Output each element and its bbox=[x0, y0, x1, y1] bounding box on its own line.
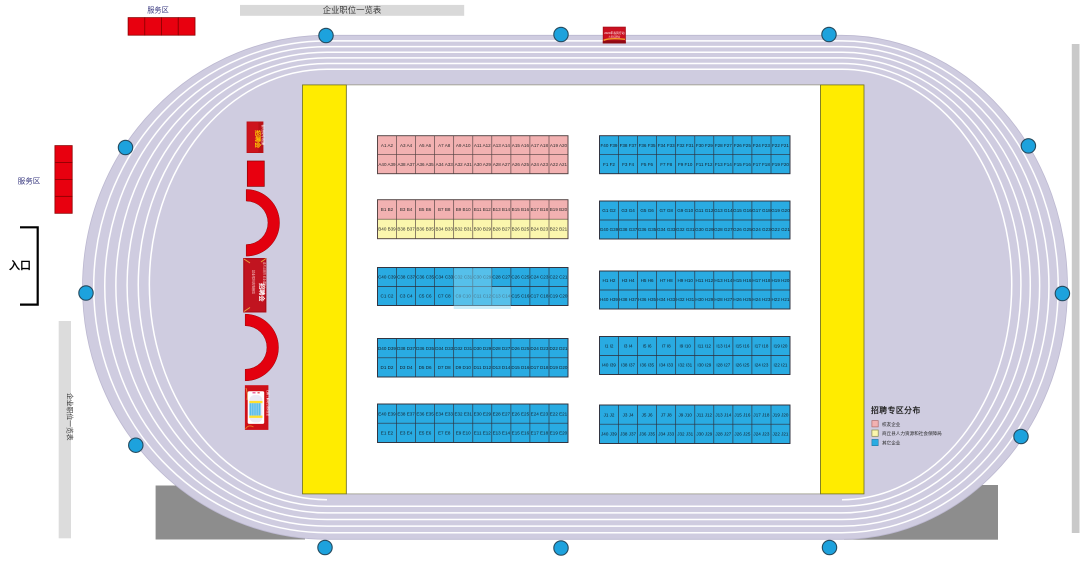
svg-text:J13 J14: J13 J14 bbox=[715, 412, 731, 417]
svg-text:E38 E37: E38 E37 bbox=[397, 411, 415, 416]
svg-text:A40 A39: A40 A39 bbox=[378, 162, 396, 167]
svg-text:F22 F21: F22 F21 bbox=[772, 143, 789, 148]
svg-text:I13 I14: I13 I14 bbox=[716, 344, 730, 349]
svg-text:商丘县人力资源和社会保障局: 商丘县人力资源和社会保障局 bbox=[882, 430, 942, 437]
svg-text:J28 J27: J28 J27 bbox=[715, 432, 731, 437]
svg-text:G1 G2: G1 G2 bbox=[602, 208, 616, 213]
svg-text:J3 J4: J3 J4 bbox=[623, 412, 634, 417]
svg-text:F24 F23: F24 F23 bbox=[753, 143, 770, 148]
svg-text:B11 B12: B11 B12 bbox=[474, 207, 492, 212]
svg-text:E24 E23: E24 E23 bbox=[531, 411, 549, 416]
svg-text:扫码了解岗位详情信息: 扫码了解岗位详情信息 bbox=[266, 390, 270, 416]
svg-text:E5 E6: E5 E6 bbox=[419, 431, 432, 436]
svg-text:F38 F37: F38 F37 bbox=[620, 143, 637, 148]
svg-text:F15 F16: F15 F16 bbox=[734, 162, 751, 167]
svg-text:B30 B29: B30 B29 bbox=[474, 227, 492, 232]
svg-text:大型招聘会: 大型招聘会 bbox=[608, 35, 621, 39]
svg-text:G17 G18: G17 G18 bbox=[752, 208, 771, 213]
svg-text:C36 C35: C36 C35 bbox=[416, 275, 434, 280]
svg-text:A1 A2: A1 A2 bbox=[381, 143, 394, 148]
svg-text:F5 F6: F5 F6 bbox=[641, 162, 653, 167]
svg-text:G19 G20: G19 G20 bbox=[771, 208, 790, 213]
svg-text:H3 H4: H3 H4 bbox=[622, 278, 635, 283]
svg-text:H34 H33: H34 H33 bbox=[657, 297, 675, 302]
svg-text:D3 D4: D3 D4 bbox=[400, 365, 413, 370]
svg-text:B26 B25: B26 B25 bbox=[512, 227, 530, 232]
svg-text:J19 J20: J19 J20 bbox=[773, 412, 789, 417]
svg-text:I28 I27: I28 I27 bbox=[716, 363, 730, 368]
svg-text:B40 B39: B40 B39 bbox=[378, 227, 396, 232]
svg-text:I15 I16: I15 I16 bbox=[735, 344, 749, 349]
svg-text:H24 H23: H24 H23 bbox=[752, 297, 770, 302]
svg-text:C22 C21: C22 C21 bbox=[550, 275, 568, 280]
svg-text:J24 J23: J24 J23 bbox=[753, 432, 769, 437]
svg-text:I17 I18: I17 I18 bbox=[754, 344, 768, 349]
svg-text:I24 I23: I24 I23 bbox=[754, 363, 768, 368]
svg-text:就业帮扶真情相助: 就业帮扶真情相助 bbox=[252, 270, 257, 294]
svg-text:春风送真情 就业暖民心: 春风送真情 就业暖民心 bbox=[263, 262, 267, 289]
svg-text:服务区: 服务区 bbox=[147, 6, 169, 15]
svg-text:A19 A20: A19 A20 bbox=[550, 143, 568, 148]
svg-text:H26 H25: H26 H25 bbox=[733, 297, 751, 302]
svg-text:G15 G16: G15 G16 bbox=[733, 208, 752, 213]
svg-text:B3 B4: B3 B4 bbox=[400, 207, 413, 212]
svg-text:A9 A10: A9 A10 bbox=[456, 143, 471, 148]
svg-text:D38 D37: D38 D37 bbox=[397, 346, 415, 351]
svg-text:H11 H12: H11 H12 bbox=[695, 278, 713, 283]
svg-text:I1 I2: I1 I2 bbox=[605, 344, 614, 349]
svg-text:H9 H10: H9 H10 bbox=[677, 278, 693, 283]
svg-text:其它企业: 其它企业 bbox=[882, 440, 901, 447]
svg-text:企业职位一览表: 企业职位一览表 bbox=[65, 393, 74, 441]
svg-text:B32 B31: B32 B31 bbox=[454, 227, 472, 232]
svg-text:G30 G29: G30 G29 bbox=[695, 227, 714, 232]
svg-text:H38 H37: H38 H37 bbox=[619, 297, 637, 302]
svg-text:C1 C2: C1 C2 bbox=[381, 294, 394, 299]
svg-text:D36 D35: D36 D35 bbox=[416, 346, 434, 351]
svg-text:D28 D27: D28 D27 bbox=[492, 346, 510, 351]
svg-text:E22 E21: E22 E21 bbox=[550, 411, 568, 416]
svg-text:J1 J2: J1 J2 bbox=[604, 412, 615, 417]
svg-text:C15 C16: C15 C16 bbox=[511, 294, 529, 299]
svg-text:D7 D8: D7 D8 bbox=[438, 365, 451, 370]
svg-text:E9 E10: E9 E10 bbox=[456, 431, 471, 436]
svg-text:B9 B10: B9 B10 bbox=[456, 207, 471, 212]
svg-text:B38 B37: B38 B37 bbox=[397, 227, 415, 232]
svg-text:I3 I4: I3 I4 bbox=[624, 344, 633, 349]
svg-text:G36 G35: G36 G35 bbox=[638, 227, 657, 232]
svg-text:I7 I8: I7 I8 bbox=[662, 344, 671, 349]
svg-text:C26 C25: C26 C25 bbox=[511, 275, 529, 280]
svg-text:G40 G39: G40 G39 bbox=[600, 227, 619, 232]
svg-text:J40 J39: J40 J39 bbox=[601, 432, 617, 437]
svg-text:H28 H27: H28 H27 bbox=[714, 297, 732, 302]
svg-text:B34 B33: B34 B33 bbox=[435, 227, 453, 232]
svg-text:D30 D29: D30 D29 bbox=[473, 346, 491, 351]
svg-text:J22 J21: J22 J21 bbox=[773, 432, 789, 437]
svg-text:D34 D33: D34 D33 bbox=[435, 346, 453, 351]
svg-text:D26 D25: D26 D25 bbox=[511, 346, 529, 351]
svg-text:H7 H8: H7 H8 bbox=[660, 278, 673, 283]
svg-text:B28 B27: B28 B27 bbox=[493, 227, 511, 232]
svg-text:F36 F35: F36 F35 bbox=[639, 143, 656, 148]
svg-text:J9 J10: J9 J10 bbox=[678, 412, 692, 417]
svg-text:D5 D6: D5 D6 bbox=[419, 365, 432, 370]
svg-text:F40 F39: F40 F39 bbox=[601, 143, 618, 148]
svg-text:F17 F18: F17 F18 bbox=[753, 162, 770, 167]
svg-text:A22 A21: A22 A21 bbox=[550, 162, 568, 167]
svg-text:A3 A4: A3 A4 bbox=[400, 143, 413, 148]
svg-text:C34 C33: C34 C33 bbox=[435, 275, 453, 280]
svg-text:D15 D16: D15 D16 bbox=[511, 365, 529, 370]
svg-text:H36 H35: H36 H35 bbox=[638, 297, 656, 302]
svg-text:J32 J31: J32 J31 bbox=[677, 432, 693, 437]
svg-text:F9 F10: F9 F10 bbox=[678, 162, 693, 167]
svg-text:I26 I25: I26 I25 bbox=[735, 363, 749, 368]
svg-text:D11 D12: D11 D12 bbox=[473, 365, 491, 370]
svg-text:J5 J6: J5 J6 bbox=[642, 412, 653, 417]
svg-text:A17 A18: A17 A18 bbox=[531, 143, 549, 148]
svg-text:F7 F8: F7 F8 bbox=[660, 162, 672, 167]
svg-text:E28 E27: E28 E27 bbox=[493, 411, 511, 416]
svg-text:D24 D23: D24 D23 bbox=[530, 346, 548, 351]
svg-text:E34 E33: E34 E33 bbox=[435, 411, 453, 416]
svg-text:J38 J37: J38 J37 bbox=[620, 432, 636, 437]
svg-text:I40 I39: I40 I39 bbox=[602, 363, 616, 368]
svg-text:I5 I6: I5 I6 bbox=[643, 344, 652, 349]
svg-text:校友企业: 校友企业 bbox=[882, 421, 901, 428]
svg-text:F34 F33: F34 F33 bbox=[658, 143, 675, 148]
svg-text:I36 I35: I36 I35 bbox=[640, 363, 654, 368]
svg-text:A32 A31: A32 A31 bbox=[455, 162, 473, 167]
svg-text:招聘会: 招聘会 bbox=[254, 130, 262, 149]
svg-text:F26 F25: F26 F25 bbox=[734, 143, 751, 148]
svg-text:E30 E29: E30 E29 bbox=[474, 411, 492, 416]
svg-text:I19 I20: I19 I20 bbox=[774, 344, 788, 349]
svg-text:E7 E8: E7 E8 bbox=[438, 431, 451, 436]
svg-text:E3 E4: E3 E4 bbox=[400, 431, 413, 436]
svg-text:E40 E39: E40 E39 bbox=[378, 411, 396, 416]
svg-text:G22 G21: G22 G21 bbox=[771, 227, 790, 232]
svg-text:A26 A25: A26 A25 bbox=[512, 162, 530, 167]
svg-text:I11 I12: I11 I12 bbox=[698, 344, 712, 349]
svg-text:入口: 入口 bbox=[9, 259, 31, 272]
svg-text:E11 E12: E11 E12 bbox=[474, 431, 492, 436]
svg-text:G26 G25: G26 G25 bbox=[733, 227, 752, 232]
svg-text:J11 J12: J11 J12 bbox=[697, 412, 713, 417]
svg-text:H32 H31: H32 H31 bbox=[676, 297, 694, 302]
svg-text:H17 H18: H17 H18 bbox=[752, 278, 770, 283]
svg-text:F28 F27: F28 F27 bbox=[715, 143, 732, 148]
svg-text:H15 H16: H15 H16 bbox=[733, 278, 751, 283]
svg-text:H19 H20: H19 H20 bbox=[772, 278, 790, 283]
svg-text:F30 F29: F30 F29 bbox=[696, 143, 713, 148]
svg-text:C17 C18: C17 C18 bbox=[530, 294, 548, 299]
svg-text:B7 B8: B7 B8 bbox=[438, 207, 451, 212]
svg-text:E19 E20: E19 E20 bbox=[550, 431, 568, 436]
svg-text:H40 H39: H40 H39 bbox=[600, 297, 618, 302]
svg-text:J30 J29: J30 J29 bbox=[696, 432, 712, 437]
svg-text:E1 E2: E1 E2 bbox=[381, 431, 394, 436]
svg-text:C24 C23: C24 C23 bbox=[530, 275, 548, 280]
svg-text:H30 H29: H30 H29 bbox=[695, 297, 713, 302]
svg-text:B13 B14: B13 B14 bbox=[493, 207, 511, 212]
svg-text:B5 B6: B5 B6 bbox=[419, 207, 432, 212]
svg-text:G3 G4: G3 G4 bbox=[621, 208, 635, 213]
svg-text:D22 D21: D22 D21 bbox=[550, 346, 568, 351]
svg-text:F32 F31: F32 F31 bbox=[677, 143, 694, 148]
svg-text:A34 A33: A34 A33 bbox=[436, 162, 454, 167]
svg-text:F11 F12: F11 F12 bbox=[696, 162, 713, 167]
svg-text:C5 C6: C5 C6 bbox=[419, 294, 432, 299]
svg-text:招聘专区分布: 招聘专区分布 bbox=[871, 405, 921, 415]
svg-text:A11 A12: A11 A12 bbox=[474, 143, 491, 148]
svg-text:C38 C37: C38 C37 bbox=[397, 275, 415, 280]
svg-text:G38 G37: G38 G37 bbox=[619, 227, 638, 232]
svg-text:D32 D31: D32 D31 bbox=[454, 346, 472, 351]
svg-text:B36 B35: B36 B35 bbox=[416, 227, 434, 232]
svg-text:G11 G12: G11 G12 bbox=[695, 208, 714, 213]
svg-text:E32 E31: E32 E31 bbox=[454, 411, 472, 416]
svg-text:G7 G8: G7 G8 bbox=[659, 208, 673, 213]
svg-text:G28 G27: G28 G27 bbox=[714, 227, 733, 232]
svg-text:J17 J18: J17 J18 bbox=[753, 412, 769, 417]
svg-text:A30 A29: A30 A29 bbox=[474, 162, 492, 167]
svg-text:G24 G23: G24 G23 bbox=[752, 227, 771, 232]
svg-text:B19 B20: B19 B20 bbox=[550, 207, 568, 212]
svg-text:E17 E18: E17 E18 bbox=[531, 431, 549, 436]
svg-text:J34 J33: J34 J33 bbox=[658, 432, 674, 437]
svg-text:B17 B18: B17 B18 bbox=[531, 207, 549, 212]
svg-text:B24 B23: B24 B23 bbox=[531, 227, 549, 232]
svg-text:I30 I29: I30 I29 bbox=[697, 363, 711, 368]
svg-text:A7 A8: A7 A8 bbox=[438, 143, 451, 148]
svg-text:F1 F2: F1 F2 bbox=[603, 162, 615, 167]
svg-text:服务区: 服务区 bbox=[18, 176, 41, 186]
svg-text:I9 I10: I9 I10 bbox=[680, 344, 692, 349]
svg-text:D9 D10: D9 D10 bbox=[455, 365, 471, 370]
svg-text:D17 D18: D17 D18 bbox=[530, 365, 548, 370]
svg-text:I34 I33: I34 I33 bbox=[659, 363, 673, 368]
svg-text:I22 I21: I22 I21 bbox=[774, 363, 788, 368]
svg-text:B15 B16: B15 B16 bbox=[512, 207, 530, 212]
svg-text:H22 H21: H22 H21 bbox=[772, 297, 790, 302]
svg-text:C3 C4: C3 C4 bbox=[400, 294, 413, 299]
svg-text:E26 E25: E26 E25 bbox=[512, 411, 530, 416]
svg-text:A15 A16: A15 A16 bbox=[512, 143, 530, 148]
svg-text:A5 A6: A5 A6 bbox=[419, 143, 432, 148]
svg-text:F3 F4: F3 F4 bbox=[622, 162, 634, 167]
svg-text:G34 G33: G34 G33 bbox=[657, 227, 676, 232]
svg-text:I38 I37: I38 I37 bbox=[621, 363, 635, 368]
svg-text:D40 D39: D40 D39 bbox=[378, 346, 396, 351]
svg-text:G32 G31: G32 G31 bbox=[676, 227, 695, 232]
svg-text:E13 E14: E13 E14 bbox=[493, 431, 511, 436]
svg-text:2024年春风行动: 2024年春风行动 bbox=[604, 31, 624, 35]
svg-text:C19 C20: C19 C20 bbox=[550, 294, 568, 299]
svg-text:F19 F20: F19 F20 bbox=[772, 162, 789, 167]
svg-text:J26 J25: J26 J25 bbox=[734, 432, 750, 437]
svg-text:H1 H2: H1 H2 bbox=[603, 278, 616, 283]
svg-text:D13 D14: D13 D14 bbox=[492, 365, 510, 370]
svg-text:C7 C8: C7 C8 bbox=[438, 294, 451, 299]
svg-text:J15 J16: J15 J16 bbox=[734, 412, 750, 417]
svg-text:A13 A14: A13 A14 bbox=[493, 143, 511, 148]
svg-text:H13 H14: H13 H14 bbox=[714, 278, 732, 283]
svg-text:A24 A23: A24 A23 bbox=[531, 162, 549, 167]
svg-text:C28 C27: C28 C27 bbox=[492, 275, 510, 280]
svg-text:春风行动专场招聘: 春风行动专场招聘 bbox=[261, 125, 265, 146]
svg-text:G5 G6: G5 G6 bbox=[640, 208, 654, 213]
svg-text:J36 J35: J36 J35 bbox=[639, 432, 655, 437]
svg-text:G9 G10: G9 G10 bbox=[677, 208, 693, 213]
svg-text:F13 F14: F13 F14 bbox=[715, 162, 732, 167]
svg-text:A38 A37: A38 A37 bbox=[397, 162, 415, 167]
svg-text:企业职位一览表: 企业职位一览表 bbox=[323, 5, 382, 15]
svg-text:D1 D2: D1 D2 bbox=[381, 365, 394, 370]
svg-text:E36 E35: E36 E35 bbox=[416, 411, 434, 416]
svg-text:B1 B2: B1 B2 bbox=[381, 207, 394, 212]
svg-text:B22 B21: B22 B21 bbox=[550, 227, 568, 232]
svg-text:D19 D20: D19 D20 bbox=[550, 365, 568, 370]
svg-text:I32 I31: I32 I31 bbox=[678, 363, 692, 368]
svg-text:A36 A35: A36 A35 bbox=[416, 162, 434, 167]
svg-text:E15 E16: E15 E16 bbox=[512, 431, 530, 436]
svg-text:C40 C39: C40 C39 bbox=[378, 275, 396, 280]
svg-text:G13 G14: G13 G14 bbox=[714, 208, 733, 213]
svg-text:J7 J8: J7 J8 bbox=[661, 412, 672, 417]
svg-text:A28 A27: A28 A27 bbox=[493, 162, 511, 167]
svg-text:H5 H6: H5 H6 bbox=[641, 278, 654, 283]
